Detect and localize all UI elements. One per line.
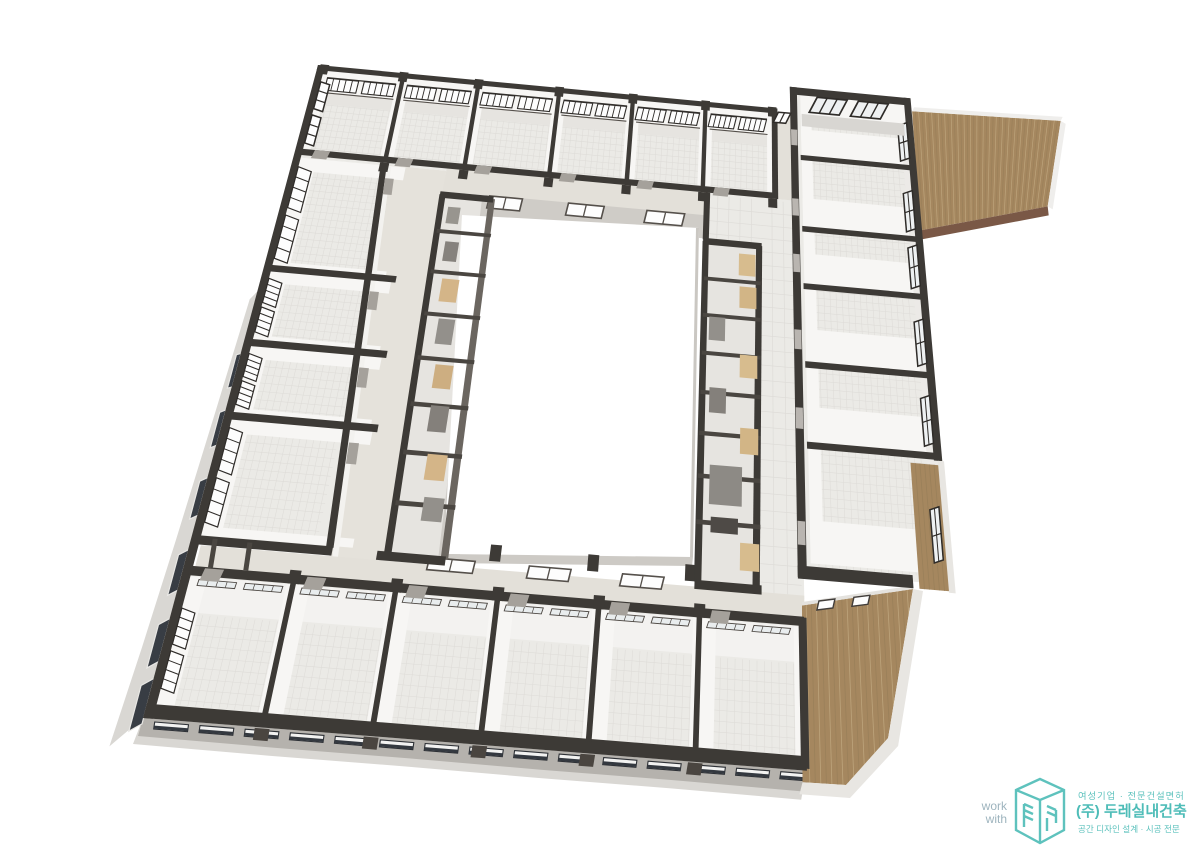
svg-text:with: with: [985, 812, 1007, 826]
svg-text:work: work: [981, 799, 1008, 813]
svg-text:(주) 두레실내건축: (주) 두레실내건축: [1076, 803, 1187, 820]
svg-text:여성기업 · 전문건설면허: 여성기업 · 전문건설면허: [1078, 790, 1185, 801]
svg-text:공간 디자인 설계 · 시공 전문: 공간 디자인 설계 · 시공 전문: [1078, 823, 1180, 834]
